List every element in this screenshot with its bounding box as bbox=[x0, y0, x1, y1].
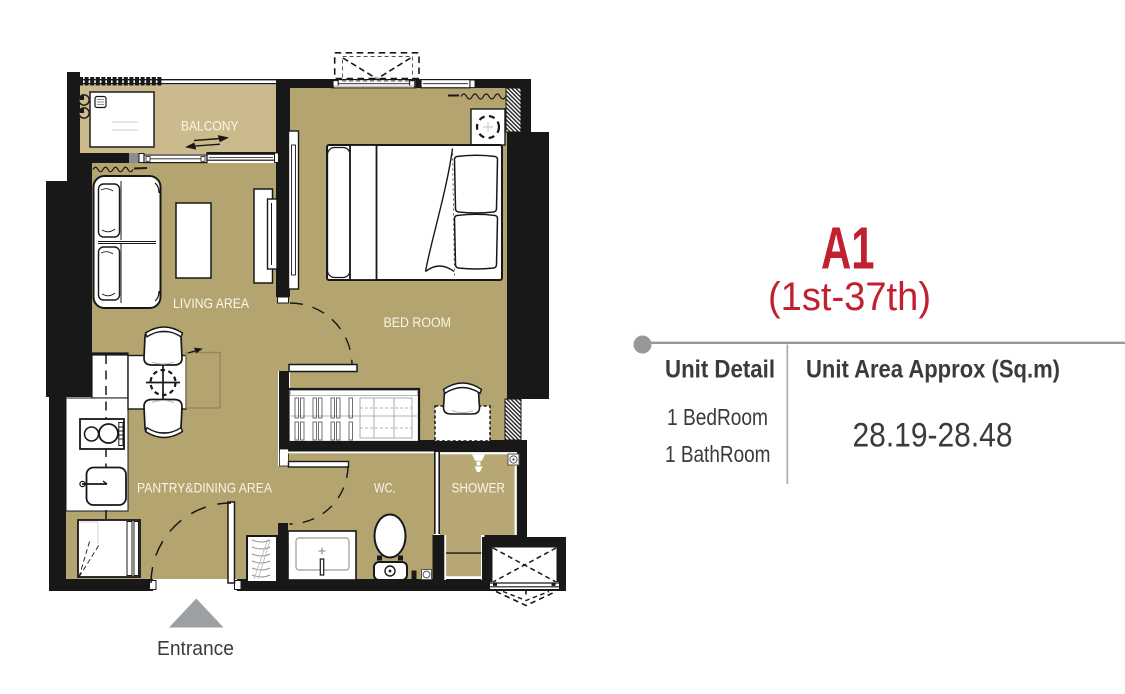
svg-text:PANTRY&DINING AREA: PANTRY&DINING AREA bbox=[137, 479, 273, 495]
svg-text:BALCONY: BALCONY bbox=[181, 118, 239, 134]
svg-text:Entrance: Entrance bbox=[157, 638, 234, 660]
svg-text:Unit Detail: Unit Detail bbox=[665, 356, 775, 384]
svg-text:BED ROOM: BED ROOM bbox=[384, 314, 452, 330]
svg-text:SHOWER: SHOWER bbox=[452, 479, 506, 495]
svg-text:LIVING AREA: LIVING AREA bbox=[173, 295, 250, 311]
svg-text:WC.: WC. bbox=[374, 479, 396, 495]
svg-text:1 BedRoom: 1 BedRoom bbox=[667, 404, 768, 430]
svg-text:Unit Area Approx (Sq.m): Unit Area Approx (Sq.m) bbox=[806, 356, 1060, 384]
svg-text:(1st-37th): (1st-37th) bbox=[768, 275, 931, 319]
svg-text:A1: A1 bbox=[821, 216, 875, 282]
svg-text:1 BathRoom: 1 BathRoom bbox=[665, 441, 771, 467]
svg-text:28.19-28.48: 28.19-28.48 bbox=[853, 417, 1013, 455]
